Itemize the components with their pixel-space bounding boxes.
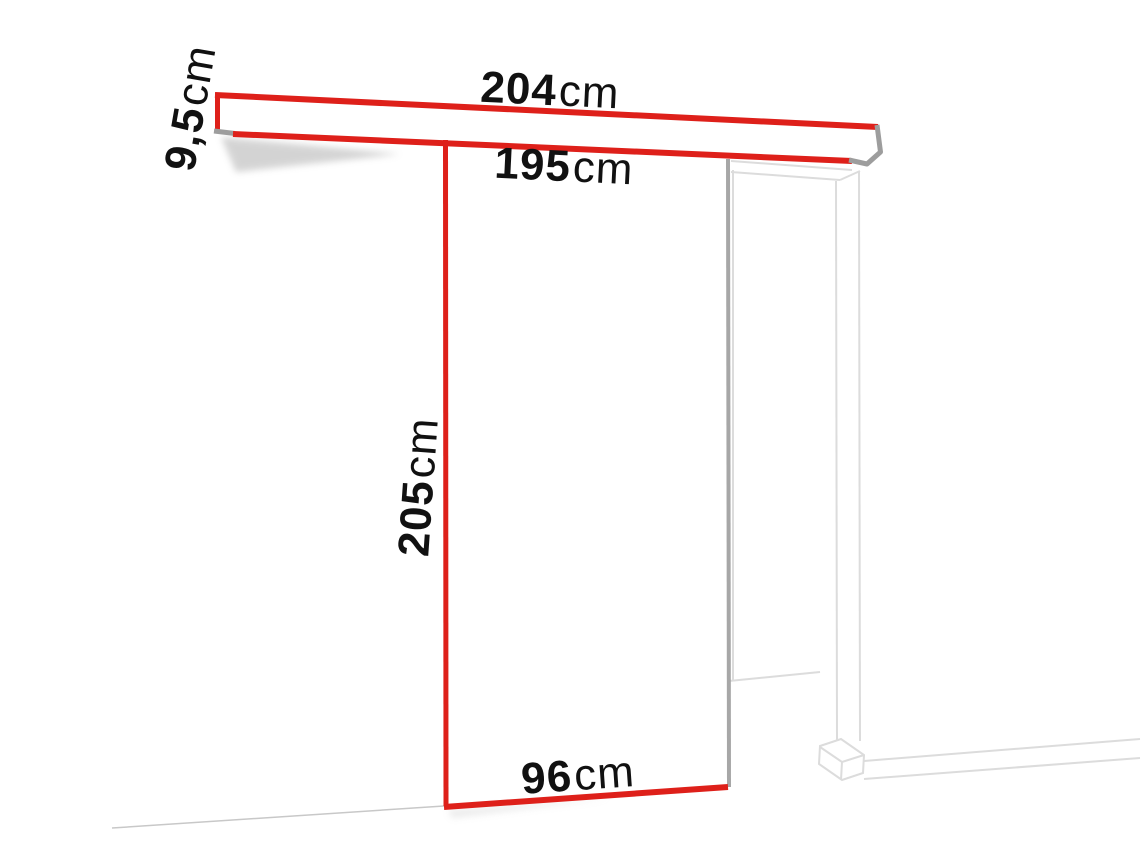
frame-post-outer-edge [859, 172, 860, 741]
skirting-top-line [864, 739, 1140, 761]
rail-right-end-cap [849, 125, 881, 164]
door-width-value: 96 [520, 751, 574, 803]
frame-floor-line-behind-door [729, 672, 820, 681]
dimension-label-door-height: 205cm [392, 416, 446, 558]
floor-line [112, 806, 444, 828]
door-left-edge [446, 140, 447, 806]
frame-head-line-2 [731, 172, 840, 180]
door-height-value: 205 [389, 478, 443, 558]
sliding-door-dimension-diagram: 204cm 9,5cm 195cm 205cm 96cm [0, 0, 1141, 855]
track-length-value: 195 [493, 139, 572, 192]
rail-length-value: 204 [479, 63, 558, 116]
rail-profile-height-unit: cm [167, 41, 226, 109]
dimension-label-rail-length: 204cm [479, 66, 620, 117]
dimension-label-door-width: 96cm [520, 750, 636, 802]
door-width-unit: cm [572, 747, 636, 800]
rail-length-unit: cm [558, 66, 621, 118]
frame-post-inner-edge [836, 181, 837, 740]
skirting-bottom-line [864, 758, 1140, 779]
door-right-edge [728, 159, 729, 787]
rail-bottom-left-connector [214, 131, 235, 134]
door-height-unit: cm [395, 416, 448, 480]
frame-head-miter [840, 171, 860, 180]
track-length-unit: cm [572, 142, 635, 194]
dimension-label-track-length: 195cm [493, 142, 634, 193]
